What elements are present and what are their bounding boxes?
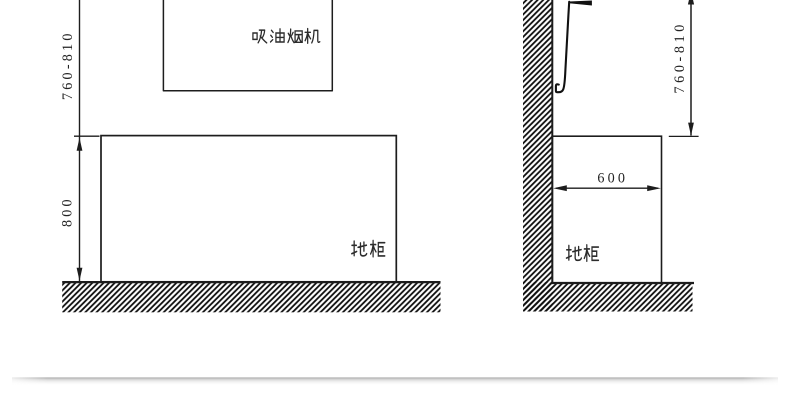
svg-text:600: 600 <box>597 171 628 187</box>
svg-text:760-810: 760-810 <box>672 21 688 94</box>
svg-text:760-810: 760-810 <box>60 30 76 100</box>
svg-text:800: 800 <box>59 196 75 227</box>
